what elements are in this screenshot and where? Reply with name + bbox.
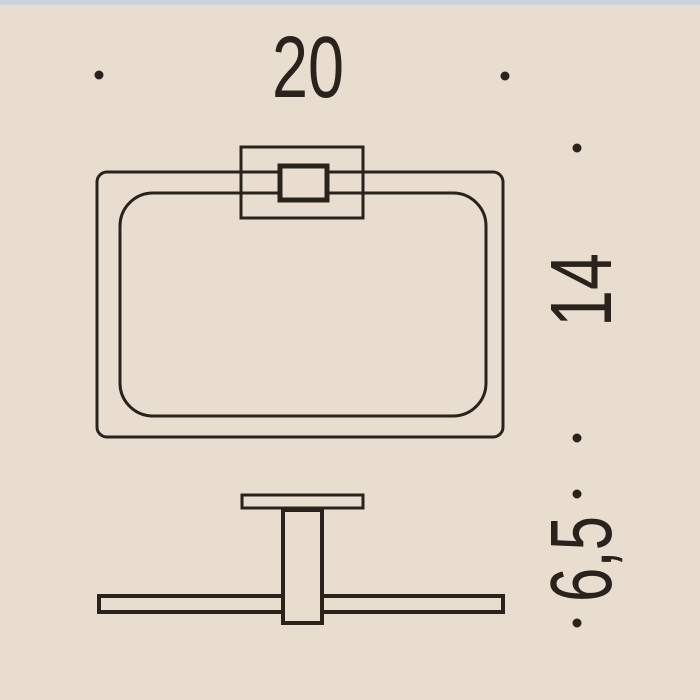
dimension-dot-depth-top xyxy=(573,490,582,499)
window-top-strip xyxy=(0,0,700,5)
dimension-label-depth: 6,5 xyxy=(533,516,630,602)
dimension-label-height: 14 xyxy=(533,253,630,327)
dimension-dot-width-left xyxy=(95,71,104,80)
dimension-dot-height-top xyxy=(573,144,582,153)
mount-block xyxy=(280,166,327,200)
dimension-dot-height-bottom xyxy=(573,434,582,443)
dimension-label-width: 20 xyxy=(272,19,344,116)
technical-drawing: 20 14 6,5 xyxy=(0,0,700,700)
dimension-dot-width-right xyxy=(501,72,510,81)
side-stem xyxy=(283,510,322,623)
dimension-dot-depth-bottom xyxy=(573,619,582,628)
